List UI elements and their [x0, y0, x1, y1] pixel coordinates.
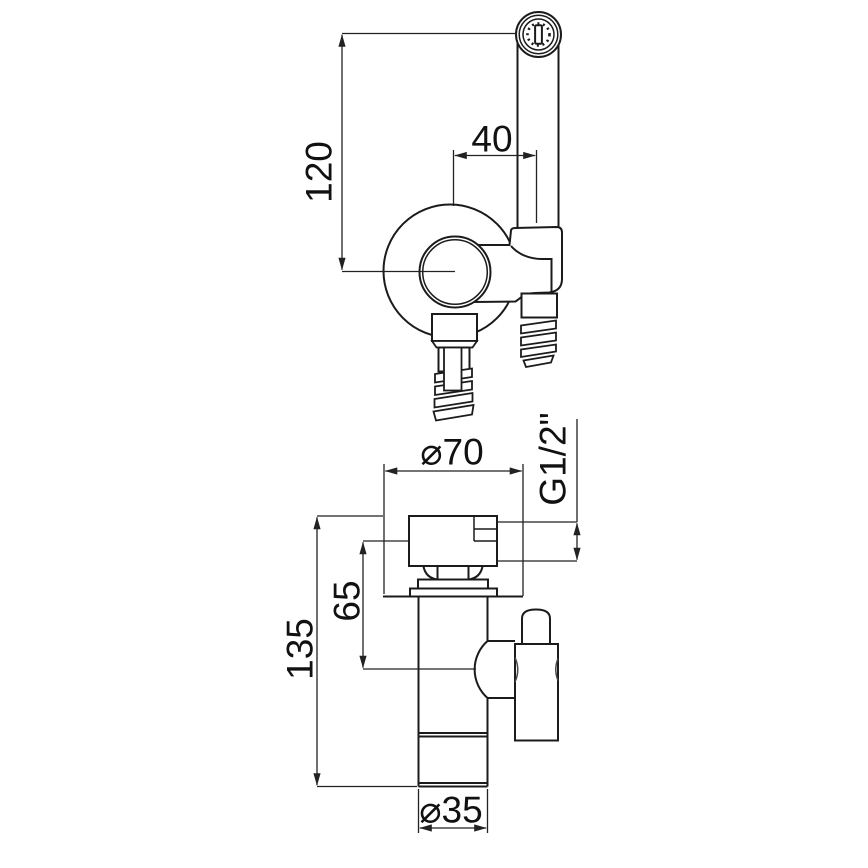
- drawing-canvas: 120 40 ⌀70 G1/2" 65 135: [0, 0, 868, 868]
- top-view: [342, 12, 562, 421]
- connector-nut: [432, 314, 477, 341]
- holder-block: [515, 644, 558, 741]
- dim-label-g12: G1/2": [533, 412, 574, 505]
- hand-shower-handle: [518, 40, 559, 228]
- dim-label-120: 120: [299, 141, 340, 203]
- dimension-135: 135: [280, 516, 418, 787]
- spray-face-slot: [535, 25, 542, 44]
- dimension-g12: G1/2": [497, 412, 577, 561]
- knob-stem: [424, 567, 483, 580]
- side-thread-1: [521, 321, 556, 334]
- dim-label-dia70: ⌀70: [420, 432, 483, 473]
- holder-front-view: [515, 610, 558, 741]
- shower-head-top-view: [516, 12, 561, 57]
- stem-flange: [418, 580, 488, 589]
- hose-connector-side: [521, 294, 557, 368]
- dimension-dia70: ⌀70: [384, 432, 523, 597]
- plate-hub: [410, 589, 497, 597]
- dim-label-40: 40: [471, 119, 512, 160]
- holder-dome: [522, 610, 550, 645]
- body-tube: [419, 597, 488, 787]
- body-front-view: [419, 597, 516, 787]
- inner-pipe: [444, 348, 462, 391]
- front-view: [383, 516, 558, 787]
- side-thread-tip: [524, 356, 554, 368]
- technical-drawing: 120 40 ⌀70 G1/2" 65 135: [0, 0, 868, 868]
- knob-front-view: [409, 516, 497, 597]
- dim-label-135: 135: [280, 618, 321, 680]
- side-connector-body: [522, 294, 558, 318]
- dim-label-dia35: ⌀35: [419, 790, 482, 831]
- side-thread-2: [521, 333, 556, 346]
- hose-connector-bottom: [432, 314, 477, 421]
- dim-label-65: 65: [327, 580, 368, 621]
- dimension-dia35: ⌀35: [419, 789, 488, 833]
